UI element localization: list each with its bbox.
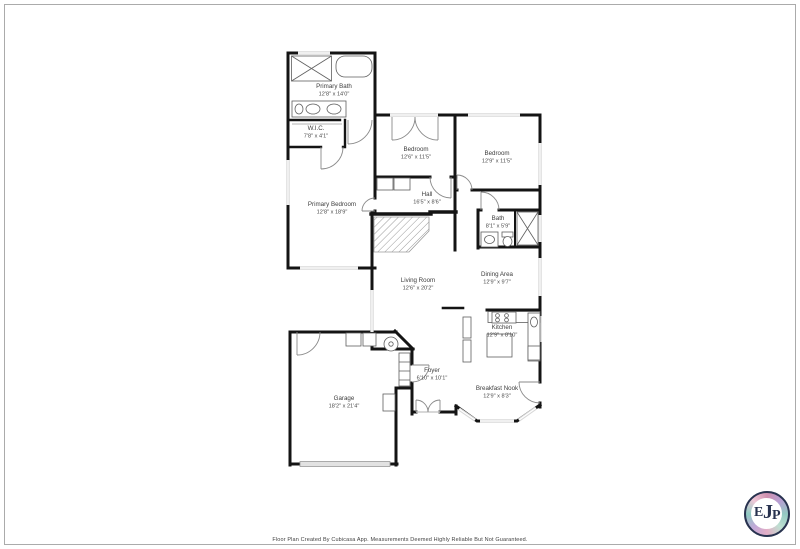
- stove-icon: [492, 312, 516, 323]
- svg-text:Bath: Bath: [492, 215, 505, 222]
- kitchen-sink-icon: [531, 317, 538, 327]
- svg-text:12'6" x 11'5": 12'6" x 11'5": [401, 155, 431, 161]
- utility-unit: [363, 333, 376, 346]
- svg-text:Foyer: Foyer: [424, 367, 440, 374]
- svg-text:12'9" x 8'3": 12'9" x 8'3": [483, 394, 511, 400]
- vanity-double-sink-icon: [292, 101, 346, 117]
- door-bath: [481, 192, 499, 210]
- svg-text:Primary Bedroom: Primary Bedroom: [308, 201, 356, 208]
- svg-text:Garage: Garage: [334, 395, 355, 402]
- svg-text:18'2" x 21'4": 18'2" x 21'4": [329, 404, 360, 410]
- door-wic: [321, 147, 343, 169]
- svg-text:12'9" x 11'5": 12'9" x 11'5": [482, 159, 512, 165]
- garage-shelves: [399, 353, 410, 386]
- door-bedroom-2: [457, 175, 472, 190]
- svg-text:Breakfast Nook: Breakfast Nook: [476, 385, 519, 392]
- room-label-hall: Hall 16'5" x 8'6": [413, 191, 441, 206]
- room-label-wic: W.I.C. 7'8" x 4'1": [304, 125, 328, 140]
- svg-text:W.I.C.: W.I.C.: [308, 125, 325, 132]
- shower-icon: [292, 56, 332, 81]
- svg-text:Bedroom: Bedroom: [484, 150, 509, 157]
- svg-text:12'6" x 20'2": 12'6" x 20'2": [403, 286, 434, 292]
- cabinet: [463, 317, 471, 338]
- svg-text:Hall: Hall: [422, 191, 433, 198]
- room-label-living-room: Living Room 12'6" x 20'2": [401, 277, 435, 292]
- garage-door: [300, 462, 390, 467]
- ejp-logo: E J P: [744, 491, 790, 537]
- room-label-primary-bath: Primary Bath 12'8" x 14'0": [316, 83, 352, 98]
- room-label-garage: Garage 18'2" x 21'4": [329, 395, 360, 410]
- utility-unit: [346, 333, 361, 346]
- svg-text:Kitchen: Kitchen: [492, 324, 513, 331]
- room-label-bedroom-2: Bedroom 12'9" x 11'5": [482, 150, 512, 165]
- svg-text:7'8" x 4'1": 7'8" x 4'1": [304, 134, 328, 140]
- room-label-primary-bedroom: Primary Bedroom 12'8" x 18'9": [308, 201, 356, 216]
- logo-letter-p: P: [772, 509, 781, 523]
- svg-text:12'9" x 9'7": 12'9" x 9'7": [483, 280, 511, 286]
- svg-text:Primary Bath: Primary Bath: [316, 83, 352, 90]
- svg-text:16'5" x 8'6": 16'5" x 8'6": [413, 200, 441, 206]
- svg-text:12'8" x 14'0": 12'8" x 14'0": [319, 92, 350, 98]
- floor-plan: Primary Bath 12'8" x 14'0" W.I.C. 7'8" x…: [0, 0, 800, 549]
- room-label-foyer: Foyer 6'10" x 10'1": [417, 367, 448, 382]
- svg-text:Bedroom: Bedroom: [403, 146, 428, 153]
- room-label-breakfast-nook: Breakfast Nook 12'9" x 8'3": [476, 385, 519, 400]
- door-primary-bedroom: [362, 198, 375, 211]
- logo-letter-e: E: [754, 506, 763, 520]
- footer-disclaimer: Floor Plan Created By Cubicasa App. Meas…: [0, 537, 800, 543]
- closet-door-right: [415, 117, 438, 140]
- room-label-kitchen: Kitchen 12'9" x 8'10": [487, 324, 518, 339]
- cabinet: [463, 340, 471, 362]
- utility-unit: [383, 394, 395, 411]
- closet-box: [377, 178, 393, 190]
- door-primary-bath: [348, 120, 372, 144]
- front-door-right: [428, 400, 440, 412]
- toilet-icon: [502, 232, 513, 247]
- svg-text:6'10" x 10'1": 6'10" x 10'1": [417, 376, 448, 382]
- door-bedroom-1: [430, 177, 451, 198]
- svg-text:Living Room: Living Room: [401, 277, 435, 284]
- room-label-bath: Bath 8'1" x 5'9": [486, 215, 510, 230]
- closet-box: [394, 178, 410, 190]
- water-heater-icon: [384, 337, 398, 351]
- door-nook-patio: [519, 382, 540, 403]
- front-door-left: [416, 400, 428, 412]
- refrigerator-icon: [528, 346, 540, 360]
- room-label-dining-area: Dining Area 12'9" x 9'7": [481, 271, 514, 286]
- closet-door-left: [392, 117, 415, 140]
- svg-text:Dining Area: Dining Area: [481, 271, 514, 278]
- stairs-icon: [374, 217, 429, 252]
- linen-closet-icon: [517, 212, 538, 245]
- svg-text:12'8" x 18'9": 12'8" x 18'9": [317, 210, 348, 216]
- room-label-bedroom-1: Bedroom 12'6" x 11'5": [401, 146, 431, 161]
- svg-text:8'1" x 5'9": 8'1" x 5'9": [486, 224, 510, 230]
- svg-text:12'9" x 8'10": 12'9" x 8'10": [487, 333, 518, 339]
- bathtub-icon: [336, 56, 372, 77]
- bath-sink-icon: [481, 232, 498, 247]
- door-garage-side: [297, 332, 320, 355]
